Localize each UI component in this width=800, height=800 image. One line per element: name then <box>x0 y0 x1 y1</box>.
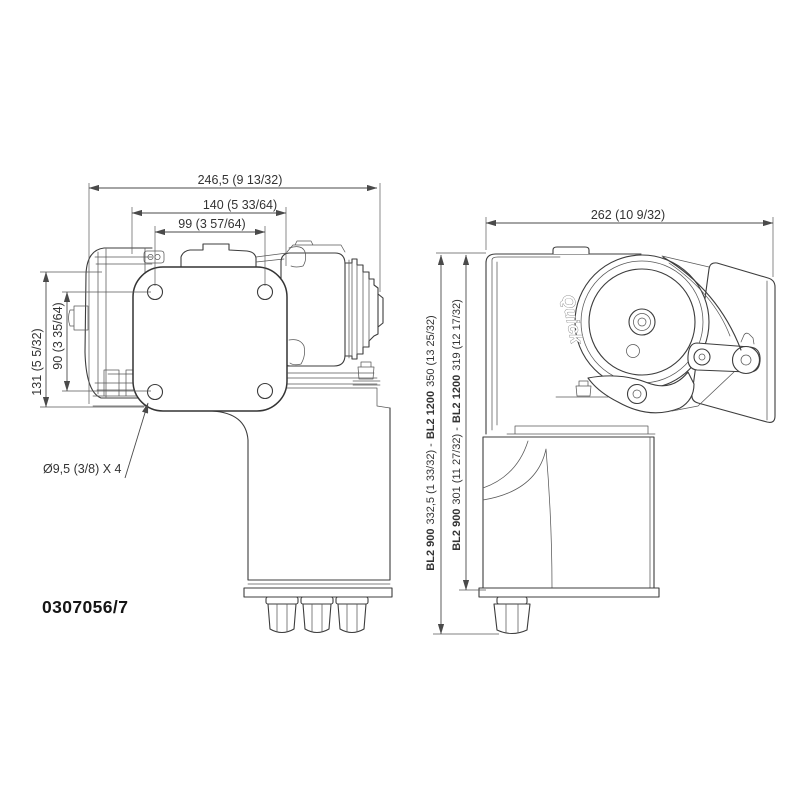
housing-top-tab <box>553 247 589 254</box>
cable-gland-side <box>494 597 530 634</box>
side-view: Quick <box>425 208 775 634</box>
top-cover-blocks <box>144 244 287 267</box>
mounting-holes-note: Ø9,5 (3/8) X 4 <box>43 462 122 476</box>
drum-hub <box>629 309 655 335</box>
technical-drawing: 246,5 (9 13/32) 140 (5 33/64) 99 (3 57/6… <box>0 0 800 800</box>
dim-bolt-spacing-horizontal-label: 99 (3 57/64) <box>178 217 245 231</box>
gearbox-shaft-stub <box>378 294 383 327</box>
hole-leader-line <box>125 403 148 478</box>
motor-body <box>479 381 659 597</box>
front-view: 246,5 (9 13/32) 140 (5 33/64) 99 (3 57/6… <box>30 173 392 633</box>
motor-housing <box>212 408 392 597</box>
clamp-bolt <box>353 362 380 385</box>
cable-glands <box>266 597 368 633</box>
gearbox <box>281 241 390 408</box>
dim-base-height-label: BL2 900301 (11 27/32) -BL2 1200319 (12 1… <box>451 299 463 551</box>
dim-overall-width-label: 246,5 (9 13/32) <box>198 173 283 187</box>
dim-overall-height-label: 131 (5 5/32) <box>30 328 44 395</box>
dim-flange-width-label: 140 (5 33/64) <box>203 198 277 212</box>
dim-total-height-label: BL2 900332,5 (1 33/32) -BL2 1200350 (13 … <box>425 315 437 570</box>
drawing-code: 0307056/7 <box>42 597 128 617</box>
dim-side-overall-width-label: 262 (10 9/32) <box>591 208 665 222</box>
dim-bolt-spacing-vertical-label: 90 (3 35/64) <box>51 302 65 369</box>
